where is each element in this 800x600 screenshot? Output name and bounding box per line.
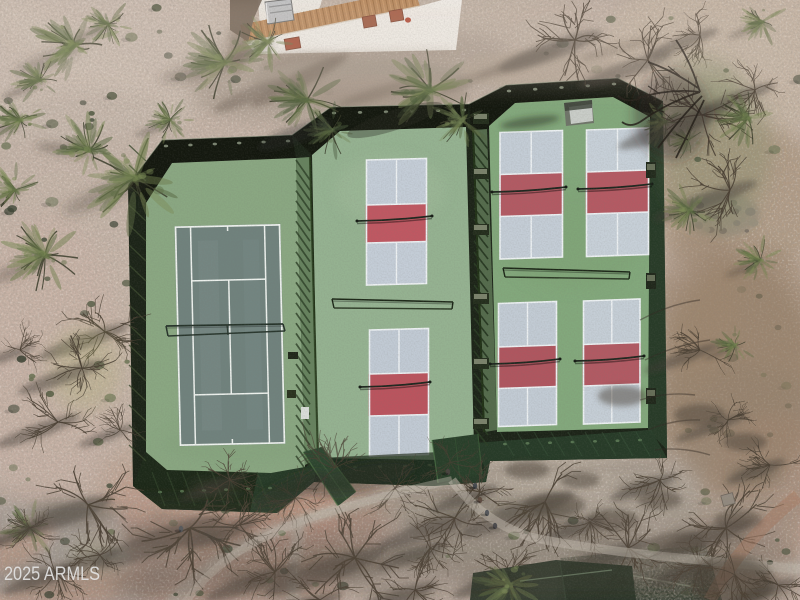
svg-text:2025 ARMLS: 2025 ARMLS xyxy=(4,563,100,585)
